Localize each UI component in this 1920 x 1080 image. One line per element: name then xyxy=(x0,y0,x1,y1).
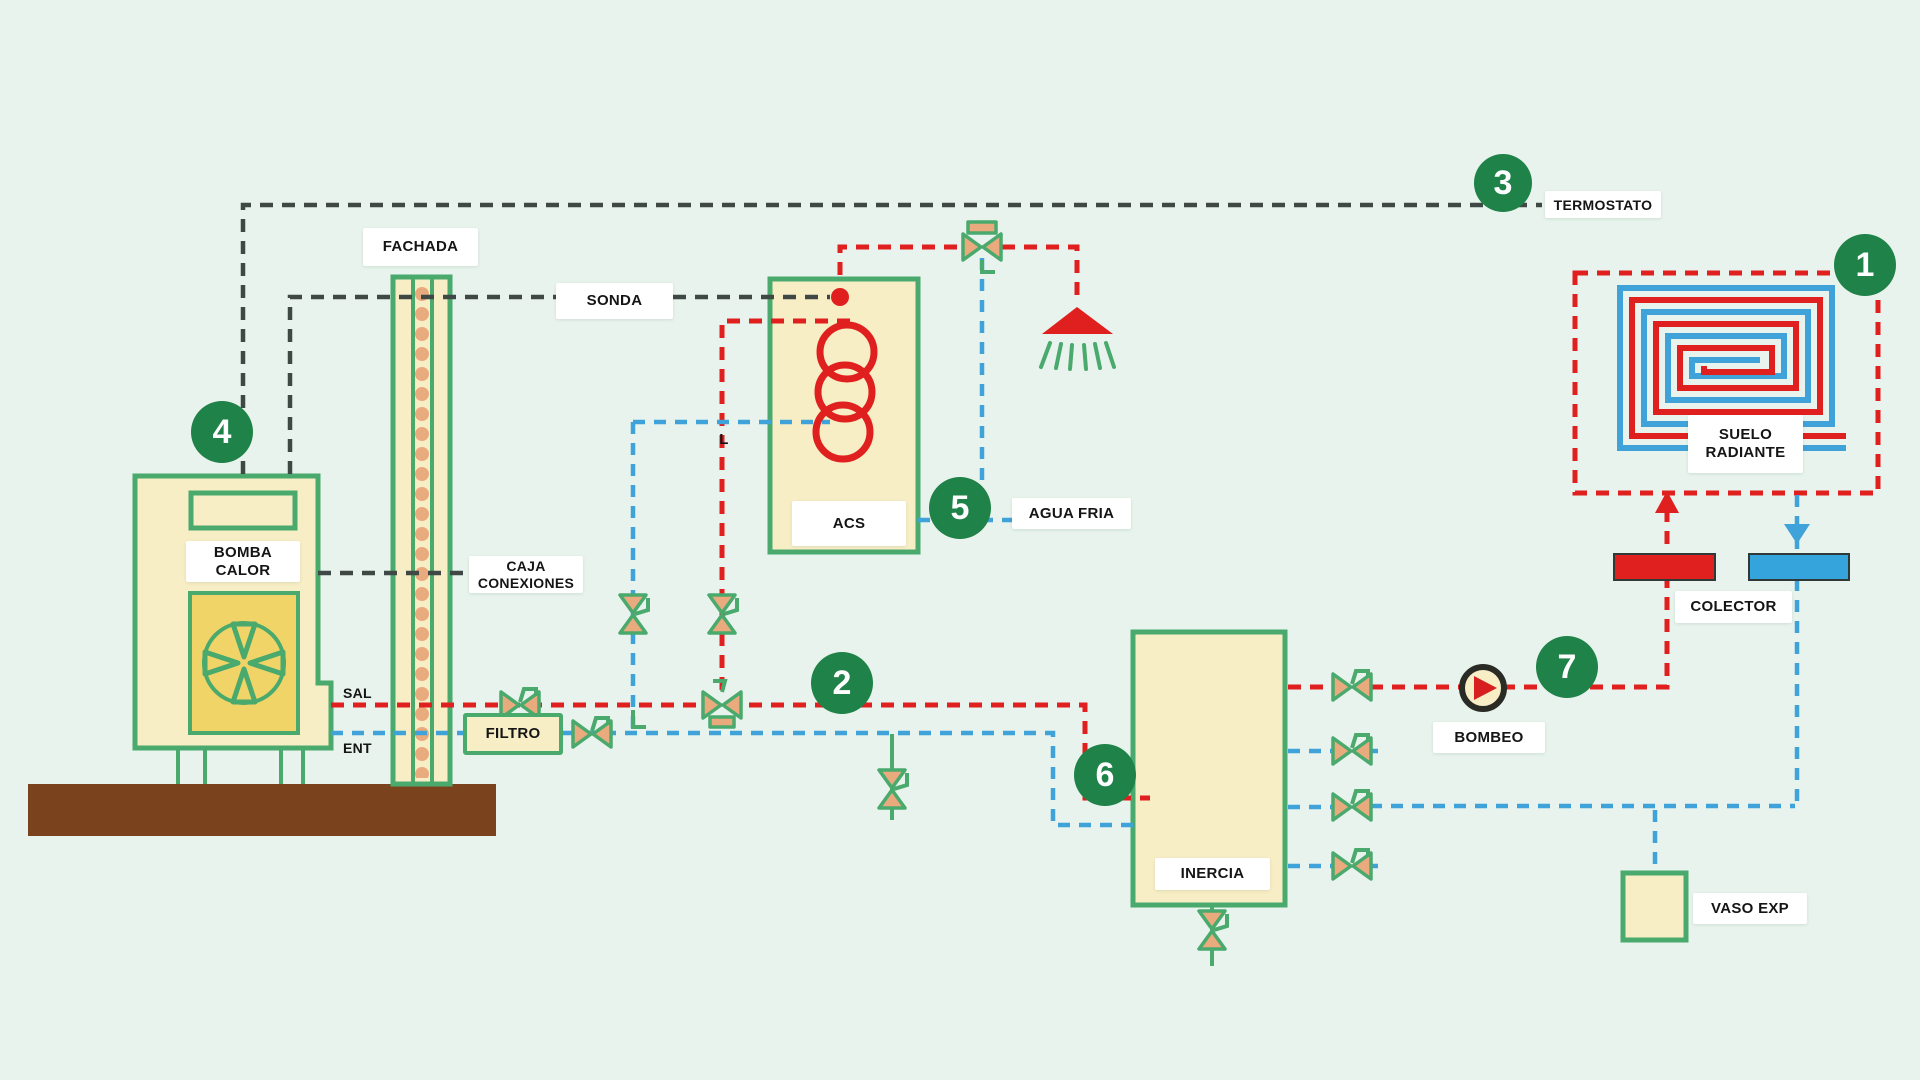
label-sal: SAL xyxy=(343,685,379,701)
marker-7: 7 xyxy=(1536,636,1598,698)
heat-pump-display xyxy=(191,493,295,528)
label-line: RADIANTE xyxy=(1706,444,1786,462)
marker-1: 1 xyxy=(1834,234,1896,296)
label-bomba-calor: BOMBACALOR xyxy=(186,541,300,582)
valve-icon xyxy=(1333,671,1371,700)
schematic-drawing xyxy=(0,0,1920,1080)
pump-to-collector-line xyxy=(1370,497,1667,687)
label-line: CALOR xyxy=(216,562,271,580)
label-fachada: FACHADA xyxy=(363,228,478,266)
valve-icon xyxy=(1333,791,1371,820)
collector-return-bar xyxy=(1748,553,1850,581)
valve-icon xyxy=(1333,735,1371,764)
three-way-valve-icon xyxy=(703,681,741,727)
label-line: CONEXIONES xyxy=(478,575,574,592)
label-vaso-exp: VASO EXP xyxy=(1693,893,1807,924)
sensor-dot-icon xyxy=(831,288,849,306)
marker-3: 3 xyxy=(1474,154,1532,212)
label-sonda: SONDA xyxy=(556,283,673,319)
marker-6: 6 xyxy=(1074,744,1136,806)
three-way-valve-icon xyxy=(963,222,1001,272)
valve-icon xyxy=(1333,850,1371,879)
label-bombeo: BOMBEO xyxy=(1433,722,1545,753)
hvac-schematic: FACHADA SONDA TERMOSTATO BOMBACALOR CAJA… xyxy=(0,0,1920,1080)
label-inercia: INERCIA xyxy=(1155,858,1270,890)
heat-pump-unit xyxy=(135,476,331,784)
valve-icon xyxy=(709,595,737,633)
arrow-up-icon xyxy=(1655,491,1679,513)
arrow-down-icon xyxy=(1784,524,1810,544)
valve-icon xyxy=(620,595,648,633)
ground xyxy=(28,784,496,836)
facade-wall xyxy=(393,277,450,784)
marker-2: 2 xyxy=(811,652,873,714)
dhw-out-line xyxy=(840,247,962,275)
label-agua-fria: AGUA FRIA xyxy=(1012,498,1131,529)
label-line: CAJA xyxy=(506,558,545,575)
label-ent: ENT xyxy=(343,740,379,756)
label-filtro: FILTRO xyxy=(463,713,563,755)
heat-pump-legs xyxy=(178,748,303,784)
drain-valve-icon xyxy=(879,734,907,820)
marker-5: 5 xyxy=(929,477,991,539)
collector-supply-bar xyxy=(1613,553,1716,581)
label-colector: COLECTOR xyxy=(1675,591,1792,623)
label-termostato: TERMOSTATO xyxy=(1545,191,1661,218)
shower-feed-line xyxy=(1002,247,1077,303)
pump-icon xyxy=(1462,667,1504,709)
expansion-vessel xyxy=(1623,873,1686,940)
label-l-mark: L xyxy=(717,431,731,449)
label-line: BOMBA xyxy=(214,544,272,562)
label-suelo-radiante: SUELORADIANTE xyxy=(1688,415,1803,473)
marker-4: 4 xyxy=(191,401,253,463)
elbow-fitting xyxy=(633,710,646,727)
shower-icon xyxy=(1041,307,1114,369)
label-acs: ACS xyxy=(792,501,906,546)
label-caja-conexiones: CAJACONEXIONES xyxy=(469,556,583,593)
label-line: SUELO xyxy=(1719,426,1772,444)
inertia-drain-valve-icon xyxy=(1199,905,1227,966)
